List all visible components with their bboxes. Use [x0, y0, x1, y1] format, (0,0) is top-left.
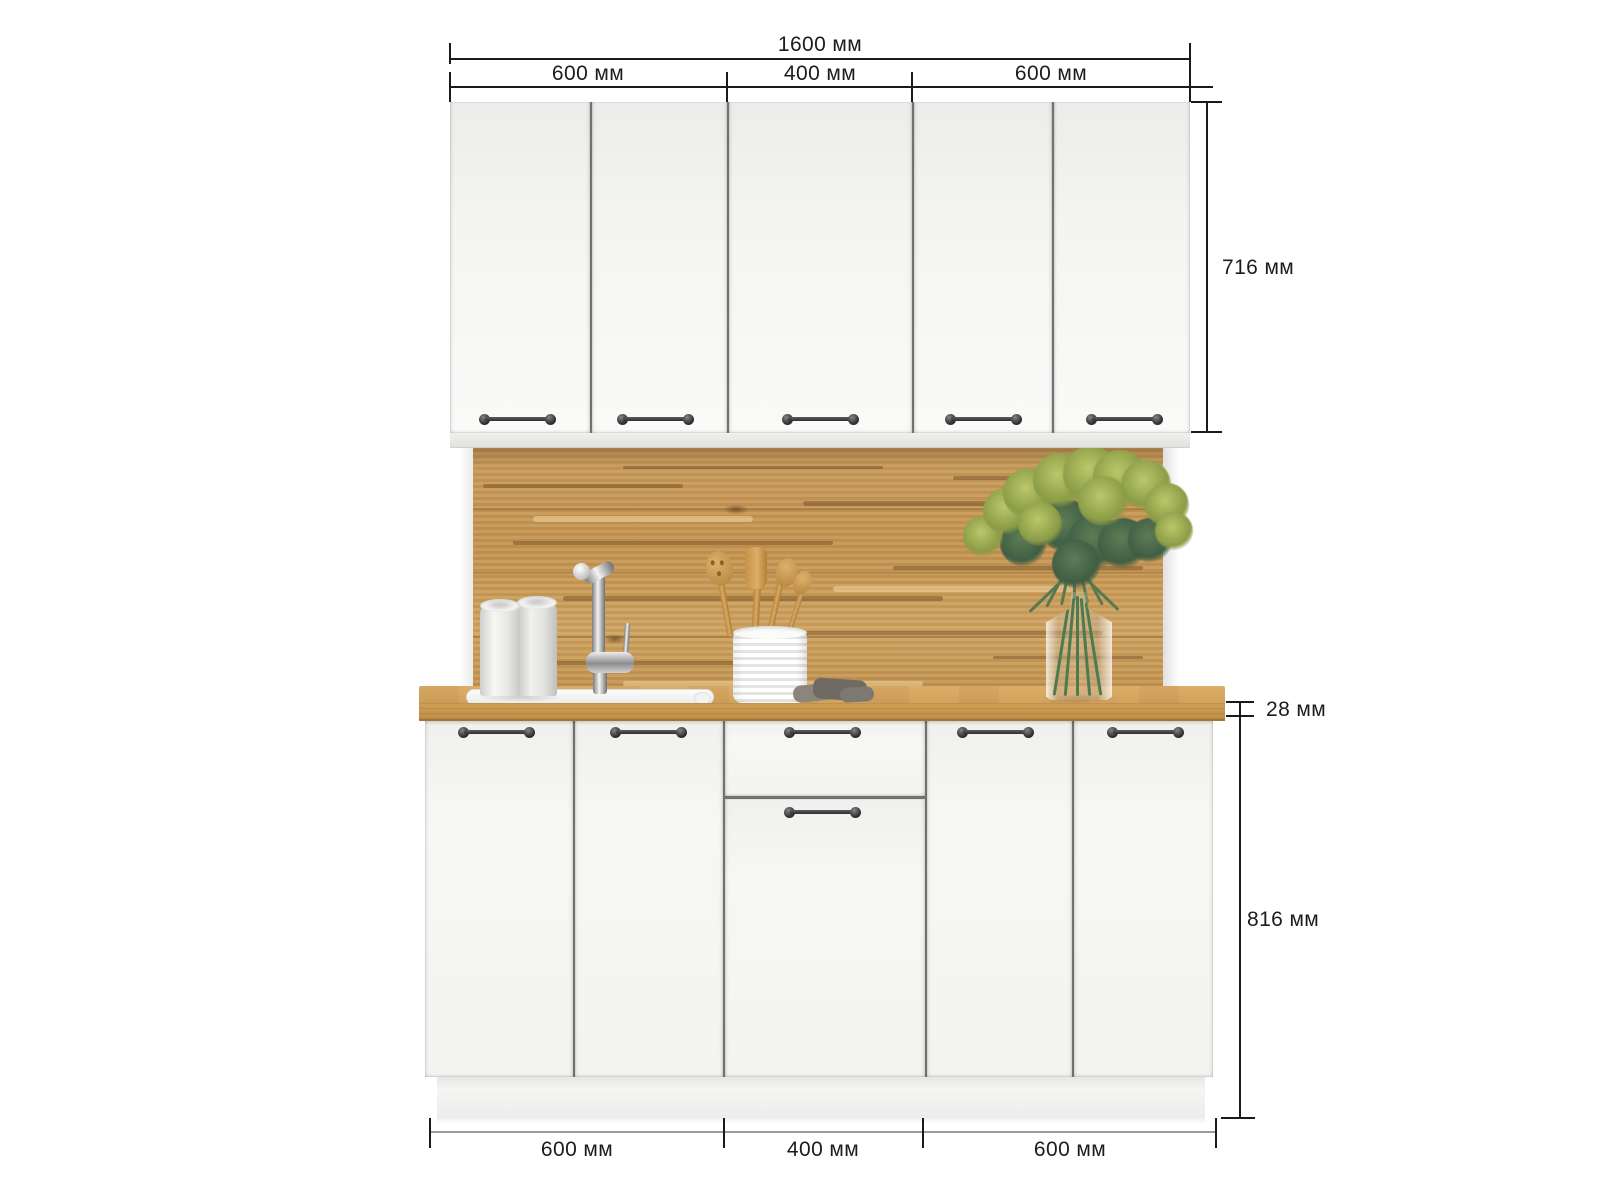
door-handle — [945, 414, 1022, 425]
faucet-base — [593, 671, 607, 694]
door-handle — [458, 727, 535, 738]
base-cabinet-run — [425, 719, 1213, 1077]
dim-countertop-label: 28 мм — [1266, 698, 1326, 722]
dim-tick — [1215, 1118, 1217, 1148]
upper-door — [729, 102, 912, 433]
dim-tick — [726, 72, 728, 102]
paper-towel-roll-top — [517, 596, 557, 609]
dim-tick — [429, 1118, 431, 1148]
dim-base-height-label: 816 мм — [1247, 908, 1319, 932]
base-door — [425, 719, 573, 1077]
dim-bottom-segment-3-label: 600 мм — [1034, 1138, 1106, 1162]
dim-tick — [1189, 59, 1191, 102]
door-handle — [782, 414, 859, 425]
dim-bottom-segment-1-label: 600 мм — [541, 1138, 613, 1162]
plant-buds — [1018, 502, 1062, 546]
door-handle — [617, 414, 694, 425]
dim-tick — [449, 43, 451, 64]
plant-buds — [1155, 512, 1193, 550]
door-handle — [784, 807, 861, 818]
faucet-body — [586, 652, 634, 673]
upper-door — [450, 102, 590, 433]
upper-door — [914, 102, 1052, 433]
plant-leaves — [1052, 540, 1100, 588]
wall-shadow-left — [459, 446, 473, 703]
plinth — [437, 1077, 1205, 1116]
dish-cloth — [840, 686, 875, 703]
dim-tick — [1191, 101, 1222, 103]
base-door — [575, 719, 723, 1077]
base-door — [927, 719, 1072, 1077]
kitchen-dimension-diagram: 1600 мм 600 мм 400 мм 600 мм 716 мм 28 м… — [0, 0, 1600, 1200]
base-door — [1074, 719, 1213, 1077]
dim-countertop-line — [1239, 701, 1241, 717]
dim-upper-height-line — [1206, 102, 1208, 433]
upper-cabinet-run — [450, 102, 1190, 433]
countertop-front-edge — [419, 703, 1225, 721]
door-handle — [610, 727, 687, 738]
dim-tick — [1191, 431, 1222, 433]
dim-base-height-line — [1239, 717, 1241, 1118]
dim-upper-height-label: 716 мм — [1222, 256, 1294, 280]
dim-total-width-line — [450, 58, 1190, 60]
base-door — [725, 799, 925, 1077]
dim-tick — [922, 1118, 924, 1148]
dim-bottom-line — [430, 1131, 1217, 1133]
dim-top-segment-1-label: 600 мм — [552, 62, 624, 86]
dim-tick — [449, 72, 451, 102]
door-handle — [1107, 727, 1184, 738]
paper-towel-roll-top — [480, 599, 520, 612]
dim-bottom-segment-2-label: 400 мм — [787, 1138, 859, 1162]
door-handle — [479, 414, 556, 425]
dim-tick — [723, 1118, 725, 1148]
door-handle — [957, 727, 1034, 738]
paper-towel-roll — [517, 602, 557, 696]
utensil-crock-rim — [733, 626, 807, 639]
dim-top-segment-3-label: 600 мм — [1015, 62, 1087, 86]
door-handle — [1086, 414, 1163, 425]
dim-tick — [1221, 1117, 1255, 1119]
drawer-handle — [784, 727, 861, 738]
dim-top-segments-line — [450, 86, 1213, 88]
dim-top-segment-2-label: 400 мм — [784, 62, 856, 86]
upper-door — [1054, 102, 1190, 433]
wooden-spatula — [745, 547, 767, 589]
paper-towel-roll — [480, 605, 520, 696]
plant-buds — [1078, 476, 1128, 526]
upper-cabinet-underside — [450, 433, 1190, 448]
dim-tick — [911, 72, 913, 102]
dim-total-width-label: 1600 мм — [778, 33, 862, 57]
faucet-knob — [573, 563, 590, 580]
upper-door — [592, 102, 727, 433]
